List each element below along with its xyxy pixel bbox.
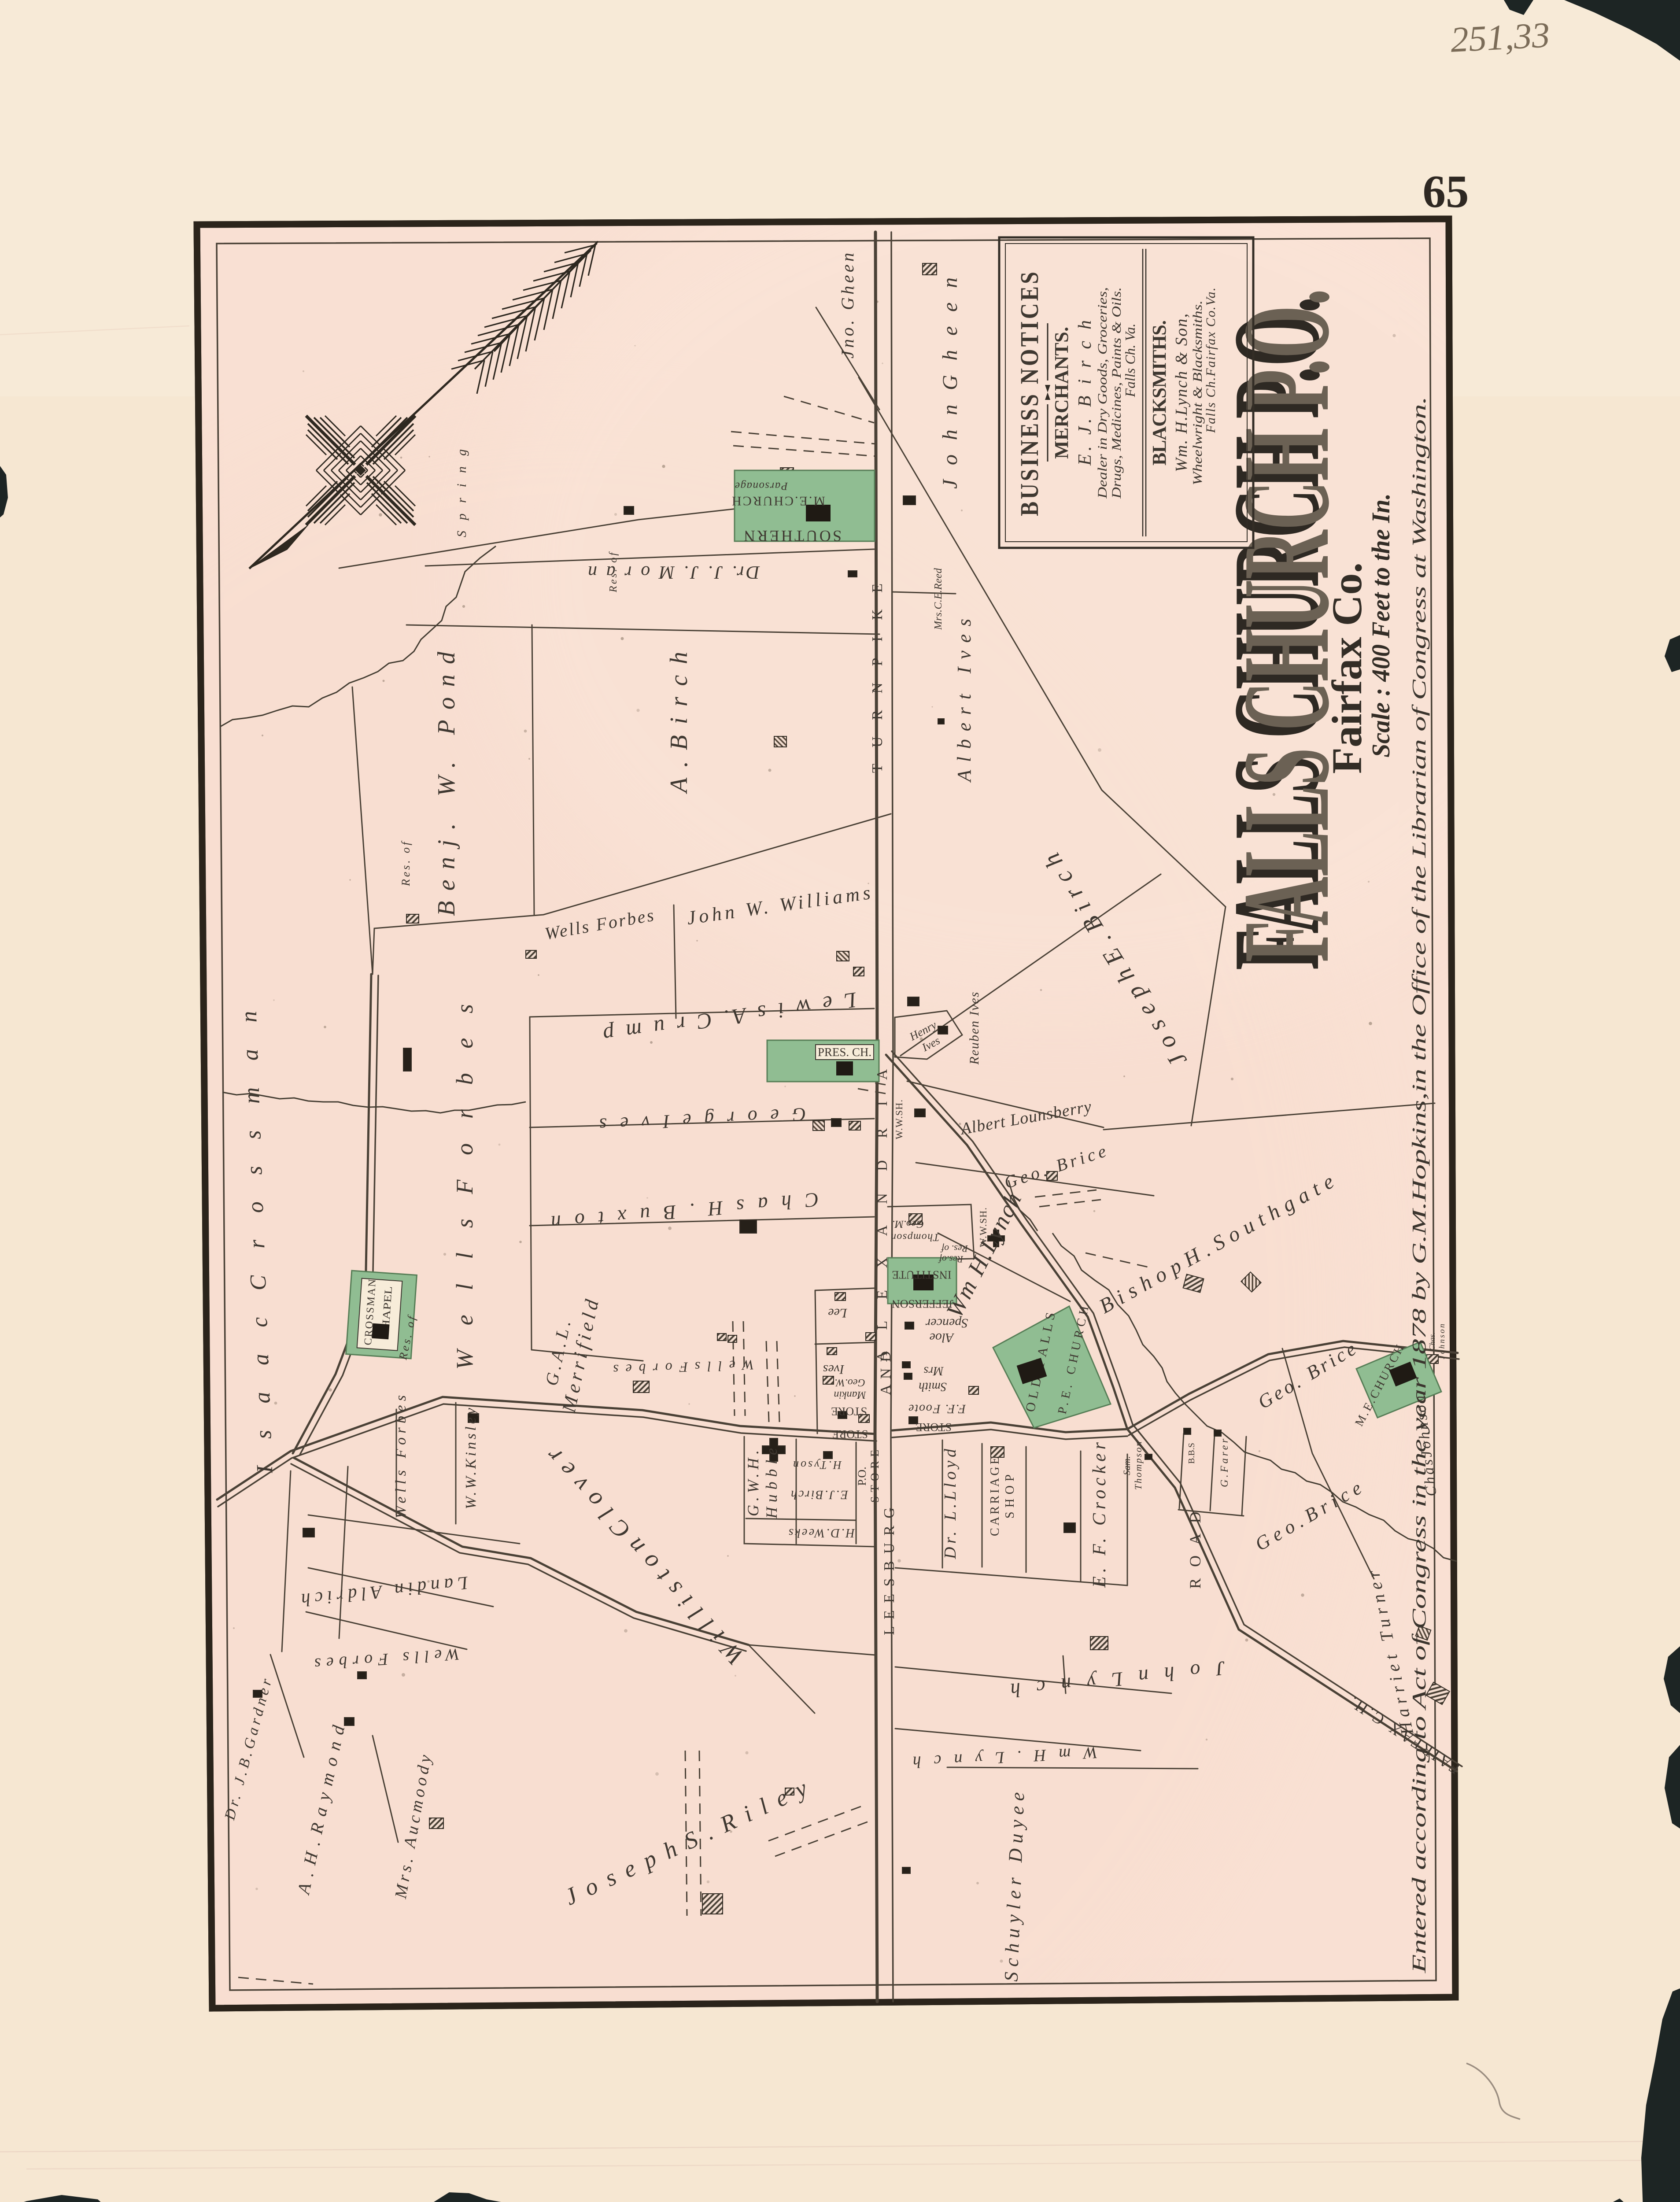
svg-text:Geo.W.: Geo.W. (834, 1377, 865, 1388)
svg-text:STORE: STORE (831, 1405, 867, 1418)
svg-text:BUSINESS NOTICES: BUSINESS NOTICES (1015, 270, 1044, 516)
svg-text:65: 65 (1423, 166, 1469, 217)
svg-text:Res.of: Res.of (938, 1254, 964, 1265)
svg-text:Thompson: Thompson (891, 1231, 939, 1243)
svg-text:Aloe: Aloe (930, 1330, 955, 1345)
svg-text:Smith: Smith (919, 1380, 947, 1393)
svg-text:Thompson: Thompson (1133, 1441, 1144, 1490)
svg-text:Jno. Gheen: Jno. Gheen (838, 253, 857, 358)
svg-text:Ives: Ives (823, 1362, 845, 1377)
svg-text:J o h n G h e e n: J o h n G h e e n (938, 277, 962, 489)
svg-text:Chas.: Chas. (1428, 1332, 1436, 1351)
svg-text:BLACKSMITHS.: BLACKSMITHS. (1148, 320, 1170, 466)
svg-text:SOUTHERN: SOUTHERN (740, 527, 842, 545)
svg-text:B.B.S: B.B.S (1187, 1443, 1196, 1464)
svg-text:Mrs: Mrs (923, 1364, 944, 1378)
svg-text:Falls Ch. Va.: Falls Ch. Va. (1122, 323, 1138, 397)
svg-text:Falls Ch.Fairfax Co.Va.: Falls Ch.Fairfax Co.Va. (1204, 288, 1218, 433)
svg-text:Res. of: Res. of (608, 551, 619, 593)
svg-text:MERCHANTS.: MERCHANTS. (1051, 327, 1072, 459)
svg-text:251,33: 251,33 (1450, 15, 1551, 60)
svg-text:A N D: A N D (878, 1351, 894, 1395)
svg-text:CARRIAGE: CARRIAGE (988, 1457, 1002, 1536)
svg-text:P.O.: P.O. (856, 1467, 868, 1485)
svg-text:G.Farer: G.Farer (1219, 1438, 1230, 1487)
svg-text:STORE: STORE (916, 1421, 952, 1434)
svg-text:Lee: Lee (828, 1306, 847, 1320)
svg-text:Mrs.C.E.Reed: Mrs.C.E.Reed (933, 568, 944, 630)
svg-text:Fairfax Co.: Fairfax Co. (1323, 562, 1370, 774)
svg-text:W.W.SH.: W.W.SH. (894, 1100, 905, 1139)
svg-text:Scale : 400 Feet to the In.: Scale : 400 Feet to the In. (1366, 493, 1395, 757)
svg-text:STORE: STORE (832, 1428, 868, 1441)
svg-text:F.F. Foote: F.F. Foote (908, 1402, 966, 1415)
svg-text:W e l l s F o r b e s: W e l l s F o r b e s (451, 1004, 478, 1370)
svg-text:G.W.H.: G.W.H. (744, 1450, 762, 1516)
svg-text:Res. of: Res. of (940, 1243, 968, 1254)
svg-text:Spencer: Spencer (925, 1316, 968, 1330)
svg-text:M.E.CHURCH: M.E.CHURCH (732, 494, 825, 508)
svg-text:INSTITUTE: INSTITUTE (892, 1268, 952, 1281)
svg-text:Parsonage: Parsonage (735, 480, 788, 492)
svg-text:Wheelwright & Blacksmiths.: Wheelwright & Blacksmiths. (1190, 300, 1205, 485)
svg-text:Sam.: Sam. (1121, 1456, 1132, 1475)
svg-text:Dealer in Dry Goods, Groceries: Dealer in Dry Goods, Groceries, (1095, 287, 1110, 499)
svg-text:PRES. CH.: PRES. CH. (818, 1046, 871, 1059)
svg-text:Reuben Ives: Reuben Ives (967, 992, 982, 1065)
svg-text:Dr. L.Lloyd: Dr. L.Lloyd (941, 1448, 960, 1559)
svg-text:Geo.M.: Geo.M. (892, 1218, 924, 1230)
svg-text:Mankin: Mankin (834, 1389, 866, 1400)
